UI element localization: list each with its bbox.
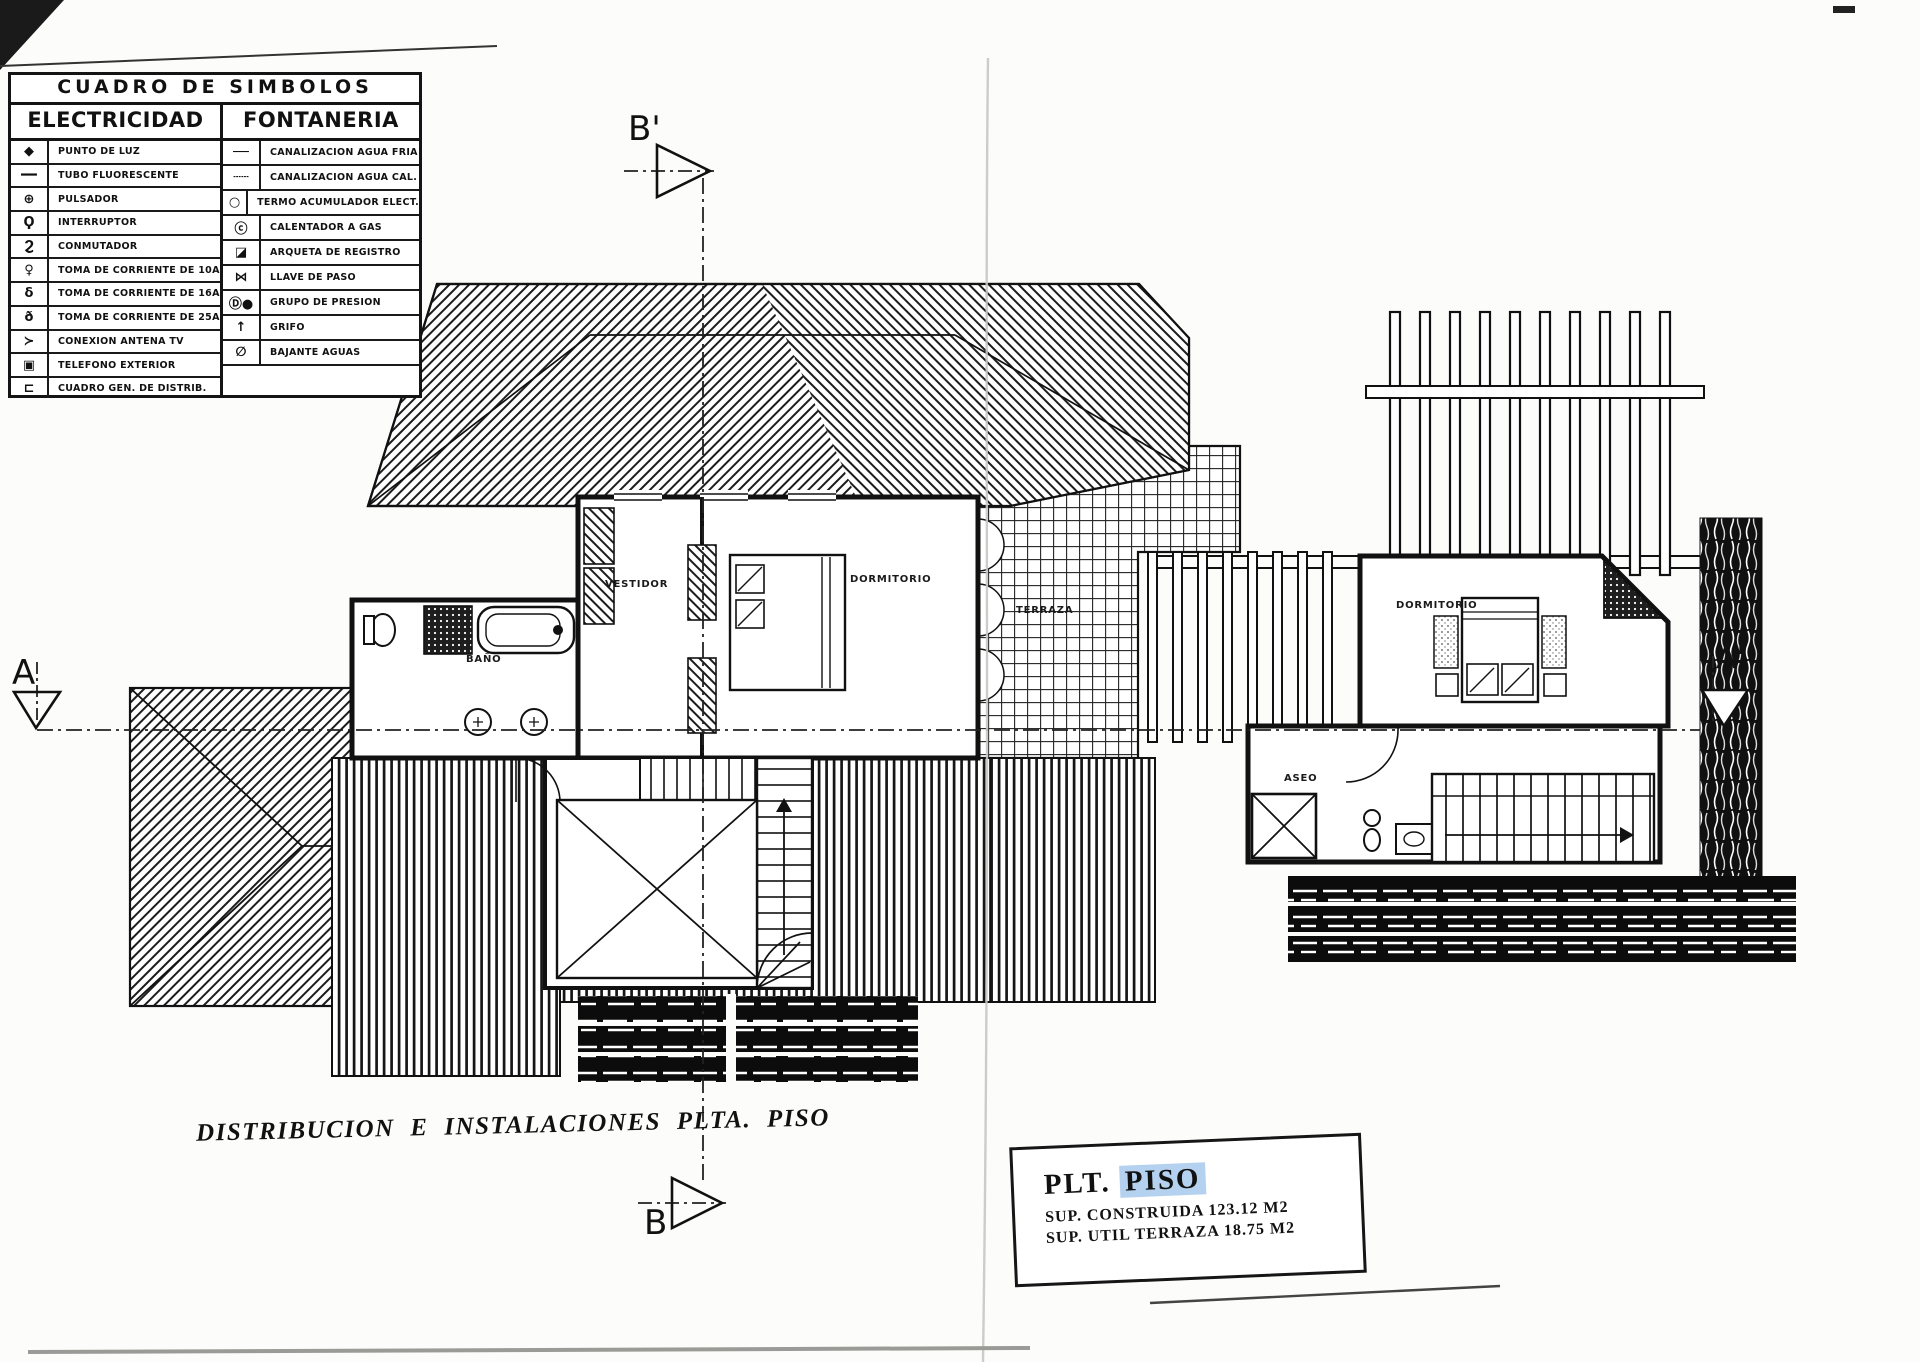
cuadro-general-distribucion-icon: ⊏	[11, 378, 49, 398]
grifo-icon: ↑	[223, 316, 261, 339]
nightstand	[1434, 616, 1458, 668]
fence-slat	[1148, 552, 1157, 742]
toma-corriente-25a-icon: ð	[11, 307, 49, 329]
legend-label: CONEXION ANTENA TV	[49, 331, 220, 353]
title-block-plan-name: PLT. PISO	[1043, 1156, 1360, 1202]
scanned-floor-plan-page: B' B A A' VESTIDOR DORMITORIO BAÑO TERRA…	[0, 0, 1920, 1362]
room-label-terraza: TERRAZA	[1016, 605, 1073, 616]
stair-treads	[1432, 774, 1654, 862]
legend-row: ⓒCALENTADOR A GAS	[223, 216, 419, 241]
legend-row: ϘINTERRUPTOR	[11, 212, 220, 236]
termo-acumulador-icon: ○	[223, 191, 248, 214]
grupo-presion-icon: Ⓓ●	[223, 291, 261, 314]
paper-edge-corner	[1150, 1286, 1500, 1303]
title-block-prefix: PLT.	[1043, 1166, 1111, 1201]
legend-row: ϨCONMUTADOR	[11, 236, 220, 260]
legend-row: ◆PUNTO DE LUZ	[11, 141, 220, 165]
pergola-beam	[1660, 312, 1670, 575]
fence-slats	[1148, 552, 1332, 742]
calentador-gas-icon: ⓒ	[223, 216, 261, 239]
legend-row: δTOMA DE CORRIENTE DE 16A	[11, 283, 220, 307]
louver-row	[578, 996, 918, 1022]
fence-slat	[1223, 552, 1232, 742]
pulsador-icon: ⊕	[11, 188, 49, 210]
legend-row: ↑GRIFO	[223, 316, 419, 341]
wardrobe	[688, 658, 716, 733]
window	[788, 490, 836, 503]
window	[700, 490, 748, 503]
legend-label: GRIFO	[261, 316, 419, 339]
canalizacion-agua-fria-icon: ──	[223, 141, 261, 164]
legend-label: INTERRUPTOR	[49, 212, 220, 234]
arqueta-registro-icon: ◪	[223, 241, 261, 264]
legend-label: LLAVE DE PASO	[261, 266, 419, 289]
fence-slat	[1248, 552, 1257, 742]
legend-label: ARQUETA DE REGISTRO	[261, 241, 419, 264]
nightstand	[1542, 616, 1566, 668]
conmutador-icon: Ϩ	[11, 236, 49, 258]
legend-label: CUADRO GEN. DE DISTRIB.	[49, 378, 220, 398]
title-block-highlighted-text: PISO	[1119, 1162, 1206, 1198]
stair-treads-top	[640, 758, 756, 802]
sink-bowl	[1404, 832, 1424, 846]
scan-corner-artifact	[0, 0, 64, 70]
canalizacion-agua-caliente-icon: ┄┄	[223, 166, 261, 189]
legend-row: ðTOMA DE CORRIENTE DE 25A	[11, 307, 220, 331]
scan-artifacts-top	[0, 0, 1855, 70]
pergola-beams	[1390, 312, 1670, 575]
telefono-exterior-icon: ▣	[11, 354, 49, 376]
toilet-tank	[364, 616, 374, 644]
legend-row: ⋈LLAVE DE PASO	[223, 266, 419, 291]
legend-row: ⊕PULSADOR	[11, 188, 220, 212]
paper-edge-line	[0, 46, 497, 66]
pergola-beam	[1510, 312, 1520, 575]
staircase-second-house	[1432, 774, 1654, 862]
symbols-legend: CUADRO DE SIMBOLOS ELECTRICIDAD ◆PUNTO D…	[8, 72, 422, 398]
legend-row: ♀TOMA DE CORRIENTE DE 10A	[11, 259, 220, 283]
llave-de-paso-icon: ⋈	[223, 266, 261, 289]
left-hip-roof	[130, 688, 366, 1006]
room-label-vestidor: VESTIDOR	[605, 579, 668, 590]
legend-label: TOMA DE CORRIENTE DE 10A	[49, 259, 220, 281]
side-table	[1436, 674, 1458, 696]
legend-row: ──CANALIZACION AGUA FRIA	[223, 141, 419, 166]
legend-label: TOMA DE CORRIENTE DE 25A	[49, 307, 220, 329]
legend-label: CANALIZACION AGUA FRIA	[261, 141, 419, 164]
fence-slat	[1173, 552, 1182, 742]
paper-edge-bottom	[28, 1348, 1030, 1352]
fence-slat	[1273, 552, 1282, 742]
toma-corriente-10a-icon: ♀	[11, 259, 49, 281]
pergola-beam	[1540, 312, 1550, 575]
legend-label: TUBO FLUORESCENTE	[49, 165, 220, 187]
conexion-antena-tv-icon: ≻	[11, 331, 49, 353]
scan-mark	[1833, 6, 1855, 13]
room-label-dormitorio: DORMITORIO	[850, 574, 931, 585]
bath-cabinet	[424, 606, 472, 654]
toilet-tank	[1364, 810, 1380, 826]
closet	[584, 508, 614, 564]
windows	[614, 490, 836, 503]
legend-column-electricidad: ELECTRICIDAD ◆PUNTO DE LUZ ━━TUBO FLUORE…	[11, 105, 223, 398]
pergola-crossbeam	[1366, 386, 1704, 398]
fence-slat	[1198, 552, 1207, 742]
louver-row	[1288, 906, 1796, 932]
pergola-beam	[1480, 312, 1490, 575]
legend-label: CANALIZACION AGUA CAL.	[261, 166, 419, 189]
legend-label: TERMO ACUMULADOR ELECT.	[248, 191, 419, 214]
interruptor-icon: Ϙ	[11, 212, 49, 234]
legend-header-electricidad: ELECTRICIDAD	[11, 105, 220, 141]
legend-row: ◪ARQUETA DE REGISTRO	[223, 241, 419, 266]
side-table	[1544, 674, 1566, 696]
fence-slat	[1323, 552, 1332, 742]
legend-column-fontaneria: FONTANERIA ──CANALIZACION AGUA FRIA ┄┄CA…	[223, 105, 419, 398]
window	[614, 490, 662, 503]
pergola-beam	[1570, 312, 1580, 575]
pergola-beam	[1420, 312, 1430, 575]
legend-row: Ⓓ●GRUPO DE PRESION	[223, 291, 419, 316]
bajante-aguas-icon: ∅	[223, 341, 261, 364]
fence-slat	[1298, 552, 1307, 742]
tubo-fluorescente-icon: ━━	[11, 165, 49, 187]
pergola-beam	[1600, 312, 1610, 575]
legend-label: TELEFONO EXTERIOR	[49, 354, 220, 376]
legend-label: PULSADOR	[49, 188, 220, 210]
legend-label: GRUPO DE PRESION	[261, 291, 419, 314]
legend-header-fontaneria: FONTANERIA	[223, 105, 419, 141]
louver-row	[1288, 936, 1796, 962]
legend-label: PUNTO DE LUZ	[49, 141, 220, 163]
bathtub-inner	[486, 614, 560, 646]
wardrobe	[688, 545, 716, 620]
pergola-beam	[1390, 312, 1400, 575]
legend-row: ━━TUBO FLUORESCENTE	[11, 165, 220, 189]
section-marker-b-prime-label: B'	[628, 109, 661, 149]
legend-row: ┄┄CANALIZACION AGUA CAL.	[223, 166, 419, 191]
legend-row: ○TERMO ACUMULADOR ELECT.	[223, 191, 419, 216]
louver-row	[578, 1026, 918, 1052]
bed-main-bedroom	[730, 555, 845, 690]
room-label-dormitorio-2: DORMITORIO	[1396, 600, 1477, 611]
legend-label: BAJANTE AGUAS	[261, 341, 419, 364]
legend-row: ⊏CUADRO GEN. DE DISTRIB.	[11, 378, 220, 398]
legend-row: ≻CONEXION ANTENA TV	[11, 331, 220, 355]
room-label-aseo: ASEO	[1284, 773, 1317, 784]
legend-columns: ELECTRICIDAD ◆PUNTO DE LUZ ━━TUBO FLUORE…	[11, 105, 419, 398]
toilet	[1364, 829, 1380, 851]
legend-label: CALENTADOR A GAS	[261, 216, 419, 239]
closet	[584, 568, 614, 624]
section-marker-a-prime-label: A'	[1716, 641, 1745, 676]
pergola-beam	[1630, 312, 1640, 575]
louver-gap	[726, 994, 736, 1086]
lower-left-roof	[332, 758, 560, 1076]
legend-row: ∅BAJANTE AGUAS	[223, 341, 419, 366]
legend-title: CUADRO DE SIMBOLOS	[11, 75, 419, 105]
punto-de-luz-icon: ◆	[11, 141, 49, 163]
room-label-bano: BAÑO	[466, 652, 501, 665]
toma-corriente-16a-icon: δ	[11, 283, 49, 305]
louver-row	[1288, 876, 1796, 902]
legend-label: CONMUTADOR	[49, 236, 220, 258]
section-marker-a-label: A	[12, 653, 35, 693]
pergola-beam	[1450, 312, 1460, 575]
bathtub-drain	[553, 625, 563, 635]
section-marker-b-label: B	[644, 1203, 667, 1243]
louver-row	[578, 1056, 918, 1082]
legend-label: TOMA DE CORRIENTE DE 16A	[49, 283, 220, 305]
title-block: PLT. PISO SUP. CONSTRUIDA 123.12 M2 SUP.…	[1009, 1133, 1367, 1288]
legend-row: ▣TELEFONO EXTERIOR	[11, 354, 220, 378]
